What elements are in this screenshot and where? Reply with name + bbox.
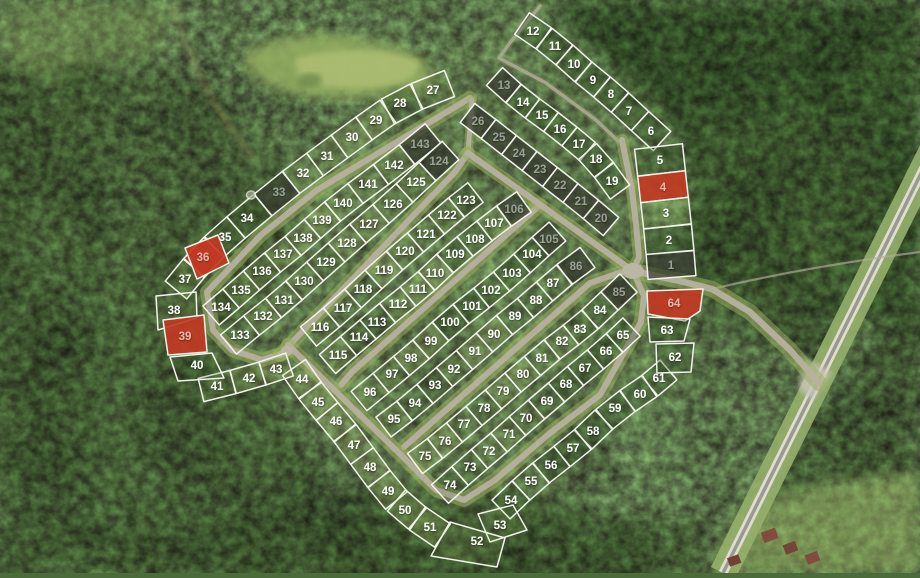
svg-text:66: 66 [600, 346, 613, 358]
svg-text:65: 65 [617, 330, 630, 342]
svg-text:139: 139 [312, 215, 331, 227]
svg-text:29: 29 [370, 115, 383, 127]
svg-text:129: 129 [316, 257, 335, 269]
svg-text:43: 43 [270, 364, 283, 376]
svg-text:96: 96 [364, 387, 377, 399]
svg-text:1: 1 [668, 260, 675, 272]
svg-text:12: 12 [527, 26, 540, 38]
svg-text:112: 112 [389, 299, 408, 311]
svg-text:101: 101 [462, 301, 482, 313]
svg-text:13: 13 [498, 80, 511, 92]
svg-text:4: 4 [660, 182, 667, 194]
svg-text:138: 138 [293, 233, 313, 245]
svg-text:116: 116 [311, 322, 330, 334]
svg-text:130: 130 [294, 276, 313, 288]
svg-text:70: 70 [520, 413, 533, 425]
svg-text:132: 132 [253, 311, 272, 323]
svg-text:3: 3 [663, 208, 669, 220]
svg-text:133: 133 [230, 330, 249, 342]
svg-text:76: 76 [439, 436, 452, 448]
svg-text:143: 143 [410, 139, 429, 151]
svg-text:109: 109 [445, 249, 464, 261]
svg-text:95: 95 [388, 414, 401, 426]
svg-text:68: 68 [560, 379, 573, 391]
svg-text:93: 93 [429, 380, 442, 392]
svg-text:105: 105 [539, 234, 559, 246]
svg-text:104: 104 [522, 249, 542, 261]
svg-text:5: 5 [657, 155, 664, 167]
svg-text:51: 51 [424, 522, 437, 534]
svg-text:98: 98 [405, 353, 418, 365]
svg-text:67: 67 [579, 363, 592, 375]
svg-text:140: 140 [333, 198, 352, 210]
svg-text:26: 26 [472, 116, 485, 128]
svg-text:85: 85 [613, 287, 626, 299]
svg-text:121: 121 [416, 229, 436, 241]
svg-text:36: 36 [197, 252, 210, 264]
svg-text:114: 114 [350, 332, 369, 344]
svg-text:27: 27 [427, 85, 440, 97]
svg-text:135: 135 [231, 285, 251, 297]
svg-text:40: 40 [191, 360, 204, 372]
svg-text:94: 94 [409, 398, 422, 410]
svg-text:64: 64 [668, 298, 681, 310]
svg-text:19: 19 [606, 176, 619, 188]
svg-text:92: 92 [448, 364, 461, 376]
svg-text:117: 117 [334, 303, 353, 315]
svg-text:31: 31 [321, 151, 334, 163]
svg-text:125: 125 [406, 177, 426, 189]
svg-text:39: 39 [179, 331, 192, 343]
svg-text:8: 8 [608, 89, 615, 101]
svg-text:115: 115 [329, 350, 348, 362]
svg-text:57: 57 [567, 443, 580, 455]
svg-text:62: 62 [669, 352, 682, 364]
svg-text:82: 82 [556, 336, 569, 348]
svg-text:17: 17 [573, 139, 586, 151]
svg-text:23: 23 [534, 164, 547, 176]
svg-text:2: 2 [666, 235, 672, 247]
svg-text:99: 99 [425, 336, 438, 348]
svg-text:60: 60 [634, 389, 647, 401]
svg-text:89: 89 [509, 311, 522, 323]
svg-text:55: 55 [525, 476, 538, 488]
svg-text:136: 136 [252, 266, 271, 278]
svg-text:122: 122 [437, 210, 456, 222]
svg-text:84: 84 [594, 305, 607, 317]
svg-text:107: 107 [484, 218, 503, 230]
svg-text:106: 106 [504, 204, 523, 216]
svg-text:10: 10 [568, 59, 581, 71]
svg-text:80: 80 [517, 369, 530, 381]
svg-text:9: 9 [590, 75, 596, 87]
svg-text:33: 33 [273, 187, 286, 199]
svg-text:124: 124 [429, 156, 449, 168]
svg-text:6: 6 [648, 126, 654, 138]
svg-text:111: 111 [409, 284, 428, 296]
svg-text:50: 50 [399, 505, 412, 517]
svg-text:87: 87 [547, 278, 560, 290]
svg-text:14: 14 [517, 97, 530, 109]
svg-text:131: 131 [274, 295, 294, 307]
svg-text:32: 32 [297, 168, 310, 180]
svg-text:127: 127 [359, 219, 378, 231]
svg-text:21: 21 [575, 196, 588, 208]
svg-text:41: 41 [211, 381, 224, 393]
svg-text:35: 35 [219, 232, 232, 244]
svg-text:16: 16 [554, 124, 567, 136]
svg-text:83: 83 [574, 324, 587, 336]
svg-text:74: 74 [444, 480, 457, 492]
svg-text:22: 22 [554, 180, 567, 192]
svg-text:81: 81 [536, 353, 549, 365]
svg-text:137: 137 [273, 249, 292, 261]
svg-text:88: 88 [530, 295, 543, 307]
svg-text:18: 18 [590, 154, 603, 166]
svg-text:86: 86 [570, 261, 583, 273]
svg-text:102: 102 [481, 285, 500, 297]
svg-text:113: 113 [368, 317, 387, 329]
svg-text:24: 24 [513, 148, 526, 160]
svg-text:59: 59 [609, 403, 622, 415]
svg-text:15: 15 [536, 110, 549, 122]
svg-text:78: 78 [478, 403, 491, 415]
svg-text:142: 142 [384, 160, 403, 172]
svg-text:103: 103 [502, 268, 521, 280]
svg-text:56: 56 [545, 460, 558, 472]
svg-text:58: 58 [587, 426, 600, 438]
svg-text:72: 72 [483, 446, 496, 458]
svg-text:52: 52 [471, 536, 484, 548]
svg-text:7: 7 [626, 106, 632, 118]
svg-text:141: 141 [358, 179, 378, 191]
svg-text:45: 45 [312, 397, 325, 409]
svg-text:20: 20 [595, 213, 608, 225]
svg-text:119: 119 [375, 265, 394, 277]
svg-text:69: 69 [541, 396, 554, 408]
svg-text:91: 91 [469, 346, 482, 358]
svg-text:28: 28 [394, 98, 407, 110]
svg-text:42: 42 [243, 373, 256, 385]
svg-text:134: 134 [211, 302, 231, 314]
svg-text:25: 25 [493, 132, 506, 144]
svg-text:100: 100 [440, 317, 459, 329]
svg-text:110: 110 [426, 268, 445, 280]
svg-text:34: 34 [241, 213, 254, 225]
svg-text:79: 79 [497, 386, 510, 398]
svg-text:49: 49 [382, 486, 395, 498]
svg-text:30: 30 [346, 132, 359, 144]
svg-text:54: 54 [505, 495, 518, 507]
svg-text:47: 47 [348, 440, 361, 452]
svg-text:90: 90 [488, 329, 501, 341]
svg-text:44: 44 [296, 374, 309, 386]
svg-text:123: 123 [456, 195, 475, 207]
svg-text:71: 71 [503, 429, 516, 441]
svg-text:108: 108 [465, 234, 485, 246]
svg-text:38: 38 [168, 305, 181, 317]
svg-text:46: 46 [330, 416, 343, 428]
svg-text:61: 61 [653, 373, 666, 385]
svg-text:126: 126 [383, 199, 402, 211]
svg-text:48: 48 [364, 462, 377, 474]
svg-text:97: 97 [386, 369, 399, 381]
svg-text:77: 77 [458, 419, 471, 431]
svg-text:120: 120 [395, 246, 414, 258]
svg-text:37: 37 [179, 274, 192, 286]
svg-text:75: 75 [419, 451, 432, 463]
svg-text:11: 11 [549, 41, 562, 53]
svg-text:63: 63 [661, 325, 674, 337]
svg-text:73: 73 [464, 462, 477, 474]
svg-text:53: 53 [494, 520, 507, 532]
svg-text:118: 118 [354, 284, 373, 296]
svg-text:128: 128 [337, 238, 357, 250]
